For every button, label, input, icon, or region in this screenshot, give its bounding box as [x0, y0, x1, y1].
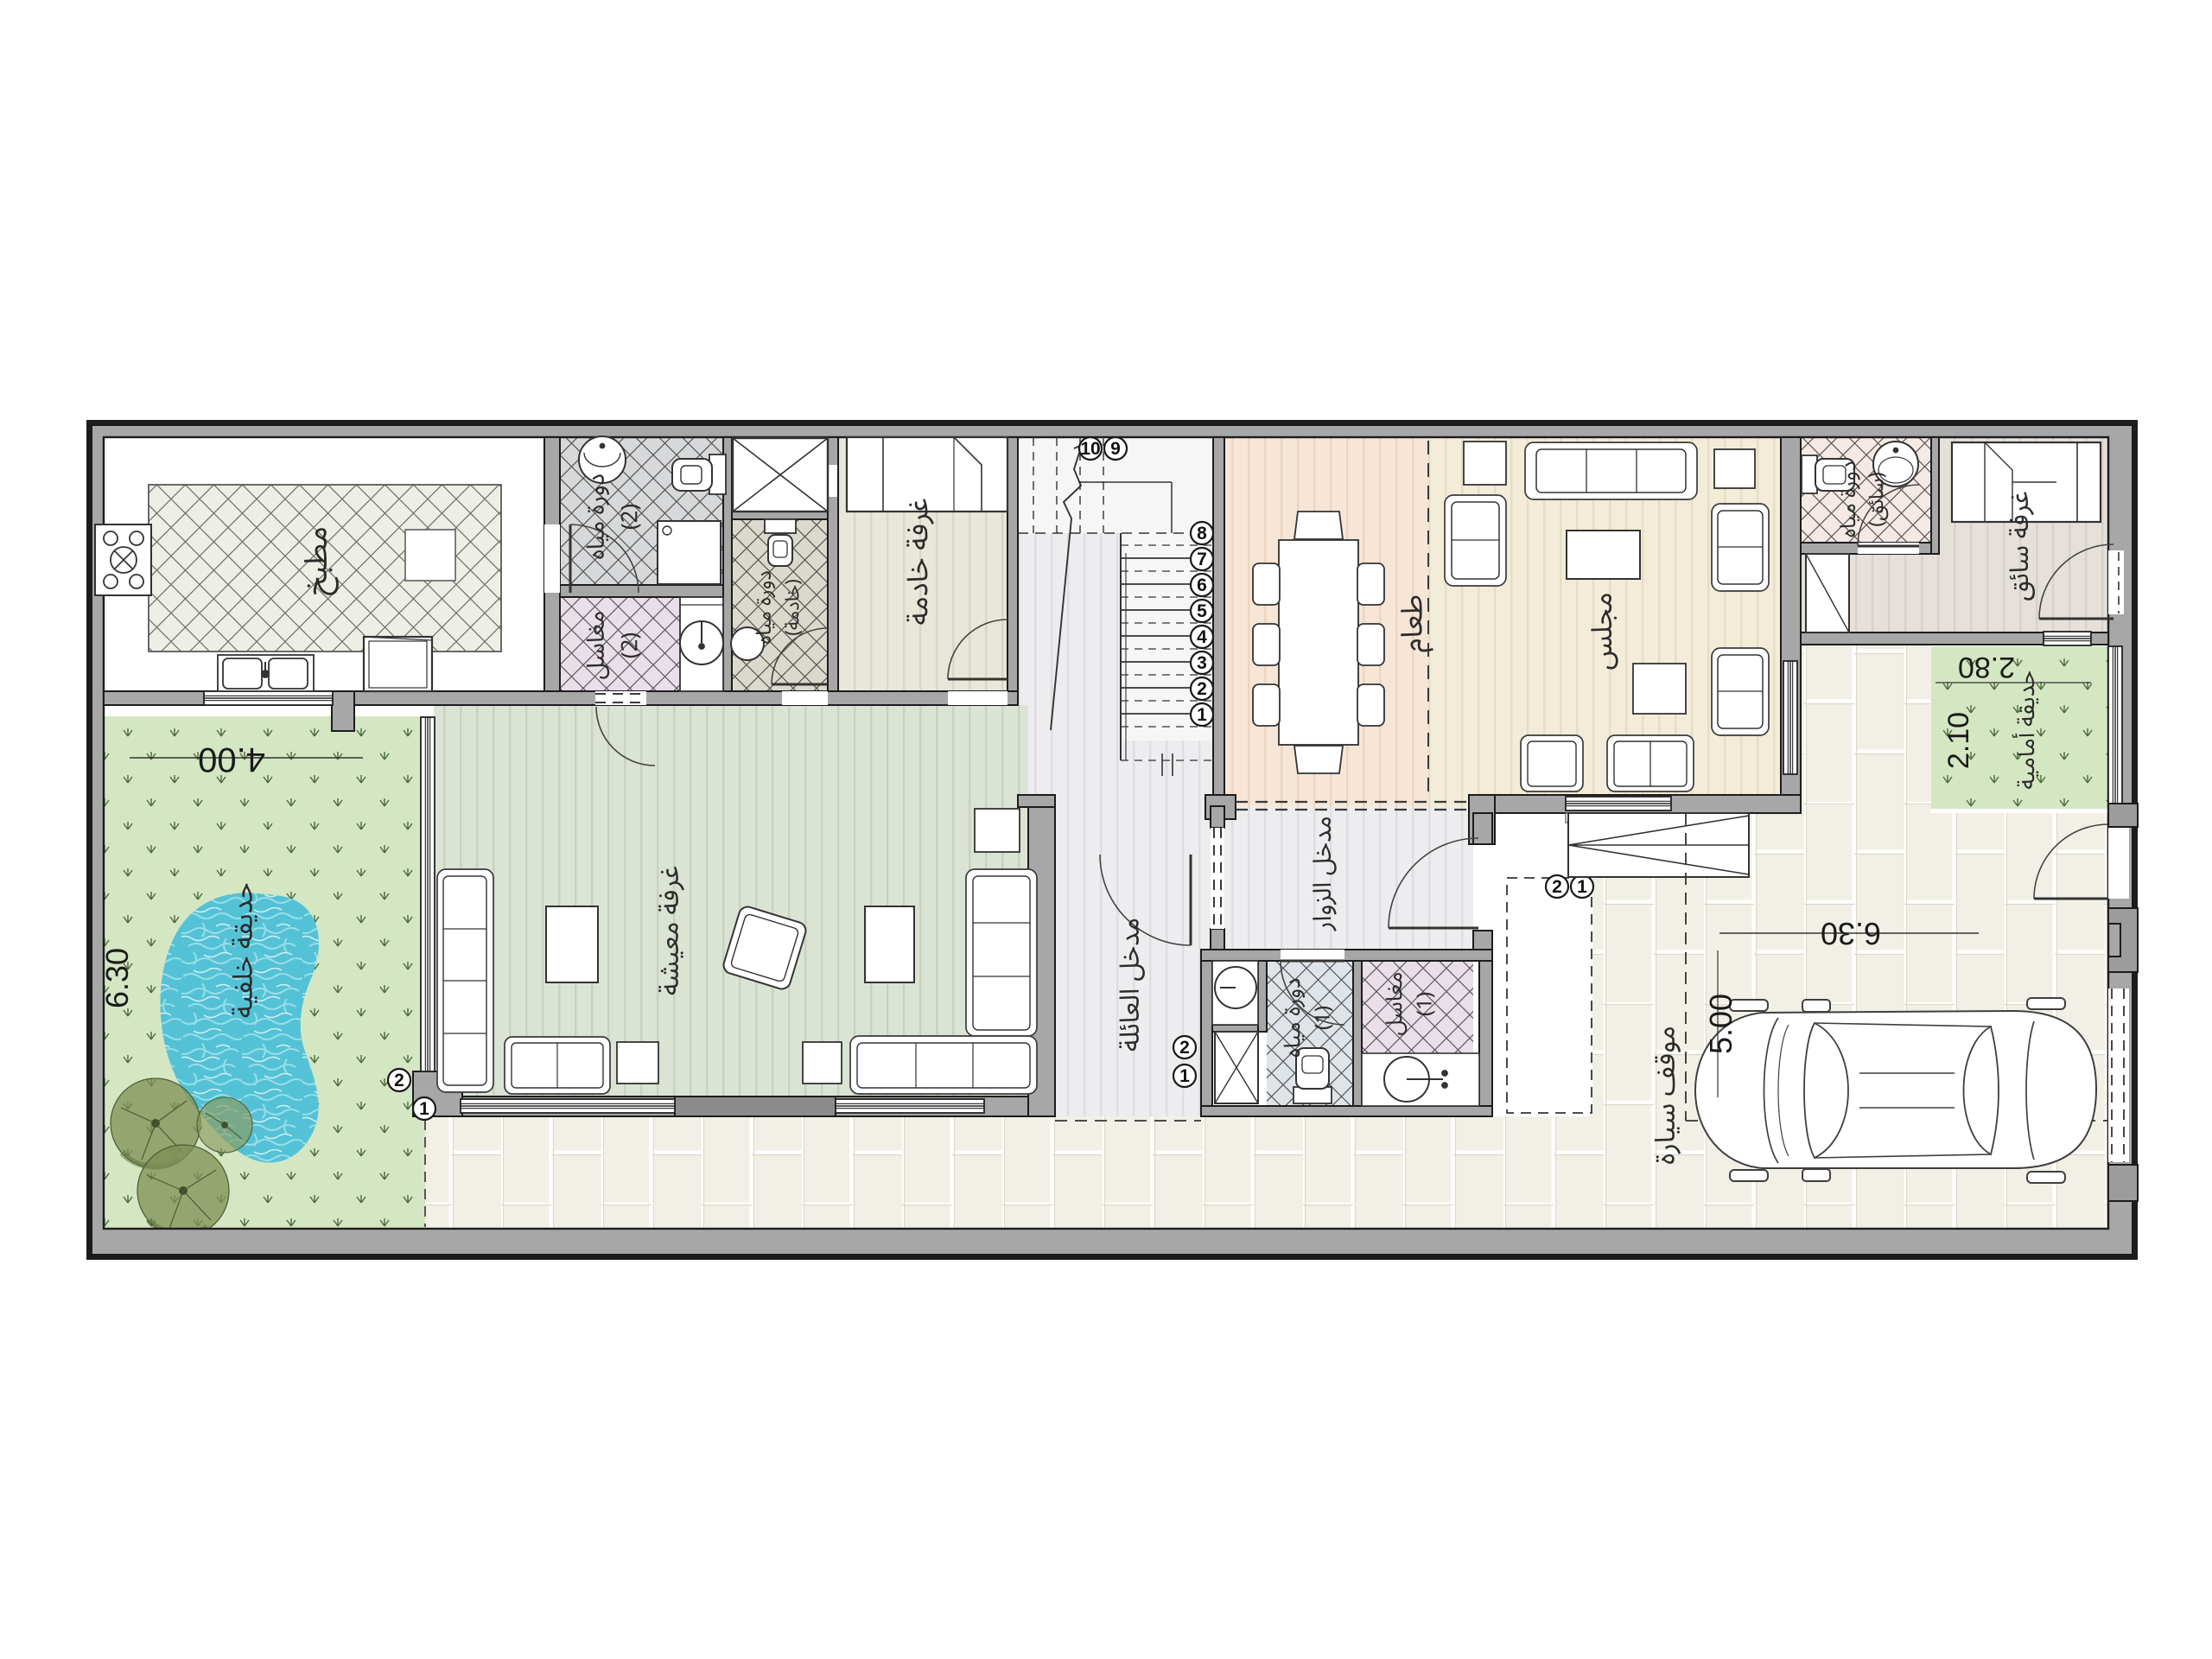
- svg-text:2.10: 2.10: [1942, 712, 1975, 769]
- svg-text:7: 7: [1197, 550, 1207, 569]
- svg-text:1: 1: [1179, 1066, 1190, 1086]
- svg-text:6: 6: [1197, 575, 1207, 595]
- svg-text:6.30: 6.30: [99, 948, 135, 1008]
- svg-text:1: 1: [1197, 705, 1207, 725]
- svg-text:8: 8: [1197, 524, 1207, 543]
- svg-text:1: 1: [419, 1099, 429, 1119]
- svg-text:2: 2: [394, 1071, 404, 1090]
- svg-text:5: 5: [1197, 601, 1207, 621]
- svg-text:3: 3: [1197, 653, 1207, 673]
- svg-text:2: 2: [1179, 1038, 1190, 1058]
- svg-text:2: 2: [1197, 679, 1207, 699]
- svg-text:1: 1: [1577, 877, 1587, 897]
- svg-text:5.00: 5.00: [1703, 994, 1738, 1054]
- svg-text:9: 9: [1110, 439, 1121, 459]
- svg-text:6.30: 6.30: [1821, 916, 1881, 951]
- svg-text:10: 10: [1080, 439, 1100, 459]
- svg-text:2.80: 2.80: [1958, 651, 2015, 683]
- svg-text:2: 2: [1552, 877, 1562, 897]
- svg-text:4.00: 4.00: [198, 741, 265, 779]
- svg-text:4: 4: [1197, 627, 1207, 647]
